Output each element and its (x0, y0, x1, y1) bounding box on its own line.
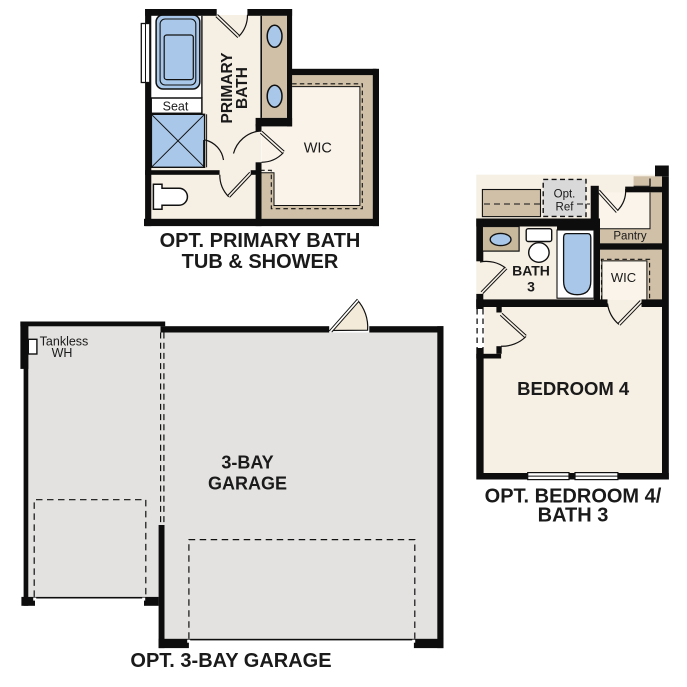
svg-text:WH: WH (52, 346, 73, 360)
svg-text:TUB & SHOWER: TUB & SHOWER (182, 251, 339, 273)
svg-text:Opt.: Opt. (554, 189, 576, 201)
svg-text:Seat: Seat (163, 100, 189, 114)
svg-text:3-BAY: 3-BAY (221, 453, 273, 473)
svg-text:Ref: Ref (556, 202, 575, 214)
svg-text:WIC: WIC (304, 140, 332, 156)
svg-text:OPT. 3-BAY GARAGE: OPT. 3-BAY GARAGE (130, 650, 331, 672)
svg-text:OPT. PRIMARY BATH: OPT. PRIMARY BATH (160, 230, 361, 252)
svg-text:GARAGE: GARAGE (208, 474, 287, 494)
svg-text:WIC: WIC (611, 270, 636, 285)
svg-text:Pantry: Pantry (613, 231, 646, 243)
svg-text:BATH 3: BATH 3 (538, 505, 609, 527)
svg-text:BEDROOM 4: BEDROOM 4 (517, 378, 630, 399)
